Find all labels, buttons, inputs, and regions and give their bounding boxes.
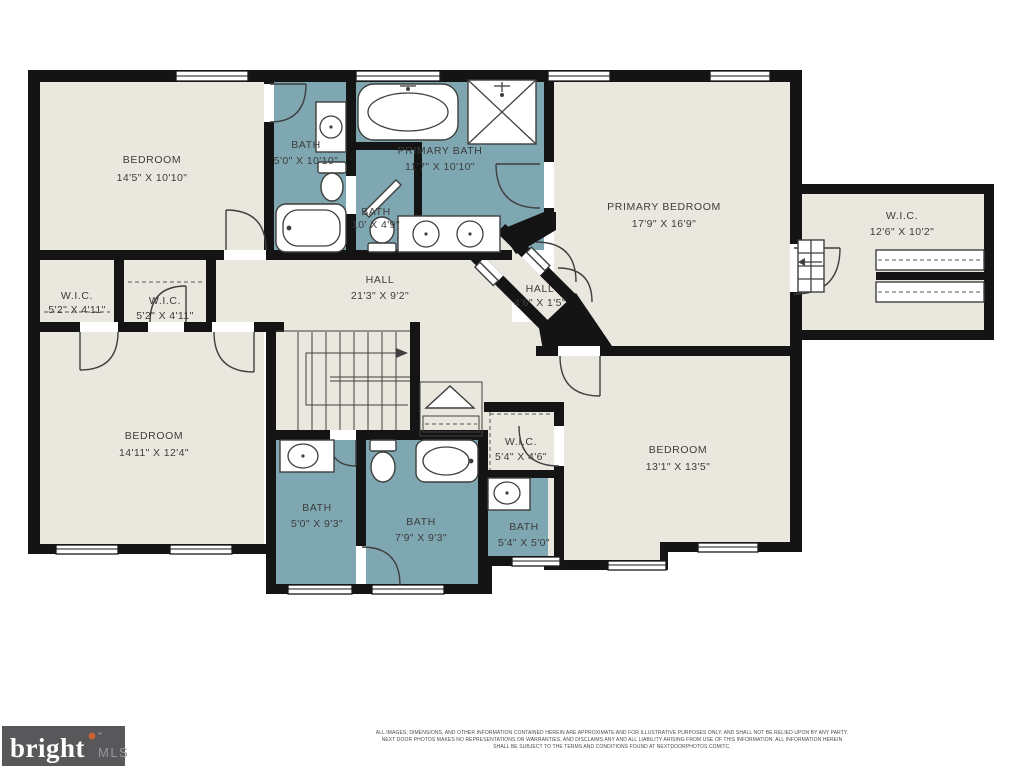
window <box>288 585 352 594</box>
bathtub-icon <box>276 204 346 252</box>
door-gap <box>554 426 564 466</box>
wall <box>484 402 564 412</box>
room-label: W.I.C. <box>149 295 181 307</box>
room-label: BATH <box>291 139 321 151</box>
floor-plan: BEDROOM 14'5" X 10'10" BATH 5'0" X 10'10… <box>0 0 1024 768</box>
room-label: HALL <box>366 274 395 286</box>
wall <box>266 322 276 594</box>
room-label: W.I.C. <box>505 436 537 448</box>
wall <box>410 322 420 440</box>
garden-tub-icon <box>358 84 458 140</box>
shower-icon <box>468 80 536 144</box>
room-dims: 14'5" X 10'10" <box>117 172 188 184</box>
room-bedroom-top-left <box>40 82 264 250</box>
room-label: BATH <box>361 206 391 218</box>
window <box>512 557 560 566</box>
room-label: BATH <box>509 521 539 533</box>
door-gap <box>148 322 184 332</box>
room-dims: 5'4" X 4'6" <box>495 451 547 463</box>
room-dims: 5'0" X 10'10" <box>274 155 339 167</box>
room-dims: 13'1" X 13'5" <box>646 461 711 473</box>
window <box>372 585 444 594</box>
room-dims: 21'3" X 9'2" <box>351 290 409 302</box>
wall <box>790 346 802 552</box>
trademark-symbol: ™ <box>97 732 102 738</box>
disclaimer: ALL IMAGES, DIMENSIONS, AND OTHER INFORM… <box>376 730 848 750</box>
window <box>698 543 758 552</box>
room-label: PRIMARY BEDROOM <box>607 201 721 213</box>
room-dims: 5'2" X 4'11" <box>48 304 106 316</box>
step-icon <box>798 240 824 292</box>
sink-icon <box>488 478 530 510</box>
room-dims: 5'4" X 5'0" <box>498 537 550 549</box>
room-dims: 17'9" X 16'9" <box>632 218 697 230</box>
room-dims: 12'6" X 10'2" <box>870 226 935 238</box>
room-label: BEDROOM <box>125 430 183 442</box>
room-primary-bedroom <box>554 82 790 346</box>
door-gap <box>356 546 366 584</box>
room-label: PRIMARY BATH <box>398 145 483 157</box>
door-gap <box>212 322 254 332</box>
wall <box>796 184 994 194</box>
wall <box>28 70 40 554</box>
door-gap <box>544 162 554 208</box>
disclaimer-line-1: ALL IMAGES, DIMENSIONS, AND OTHER INFORM… <box>376 730 848 736</box>
watermark-logo: bright ™ MLS <box>2 726 129 766</box>
door-gap <box>224 250 266 260</box>
room-dims: 14'11" X 12'4" <box>119 447 189 459</box>
room-label: BEDROOM <box>123 154 181 166</box>
door-gap <box>330 430 356 440</box>
door-gap <box>558 346 600 356</box>
door-gap <box>264 84 274 122</box>
door-gap <box>346 176 356 214</box>
window <box>56 545 118 554</box>
window <box>710 71 770 81</box>
brand-text: bright <box>10 733 85 763</box>
wall <box>790 70 802 356</box>
wall <box>346 70 356 260</box>
closet-rod-icon <box>876 250 984 302</box>
room-label: HALL <box>526 283 555 295</box>
double-vanity-icon <box>398 216 500 252</box>
window <box>170 545 232 554</box>
wall <box>484 566 492 584</box>
disclaimer-line-3: SHALL BE SUBJECT TO THE TERMS AND CONDIT… <box>493 744 731 750</box>
wall <box>984 184 994 340</box>
window <box>176 71 248 81</box>
room-label: W.I.C. <box>886 210 918 222</box>
room-label: BEDROOM <box>649 444 707 456</box>
bathtub-icon <box>416 440 478 482</box>
room-dims: 4'6" X 1'5" <box>514 297 566 309</box>
wall <box>206 250 216 332</box>
wall <box>484 470 560 478</box>
wall <box>114 250 124 332</box>
room-label: W.I.C. <box>61 290 93 302</box>
room-dims: 10' X 4'9" <box>352 219 400 231</box>
window <box>356 71 440 81</box>
floor-plan-page: BEDROOM 14'5" X 10'10" BATH 5'0" X 10'10… <box>0 0 1024 768</box>
window <box>608 561 666 570</box>
room-label: BATH <box>302 502 332 514</box>
disclaimer-line-2: NEXT DOOR PHOTOS MAKES NO REPRESENTATION… <box>382 737 843 743</box>
logo-dot-icon <box>89 733 96 740</box>
room-dims: 5'2" X 4'11" <box>136 310 194 322</box>
door-gap <box>80 322 118 332</box>
sink-icon <box>280 440 334 472</box>
room-label: BATH <box>406 516 436 528</box>
room-dims: 11'7" X 10'10" <box>405 161 475 173</box>
toilet-icon <box>370 440 396 482</box>
brand-suffix-text: MLS <box>98 745 129 760</box>
room-bedroom-bottom-right <box>548 356 790 560</box>
room-hall-center-east <box>484 332 548 412</box>
room-dims: 5'0" X 9'3" <box>291 518 343 530</box>
window <box>548 71 610 81</box>
wall <box>796 330 994 340</box>
room-dims: 7'9" X 9'3" <box>395 532 447 544</box>
